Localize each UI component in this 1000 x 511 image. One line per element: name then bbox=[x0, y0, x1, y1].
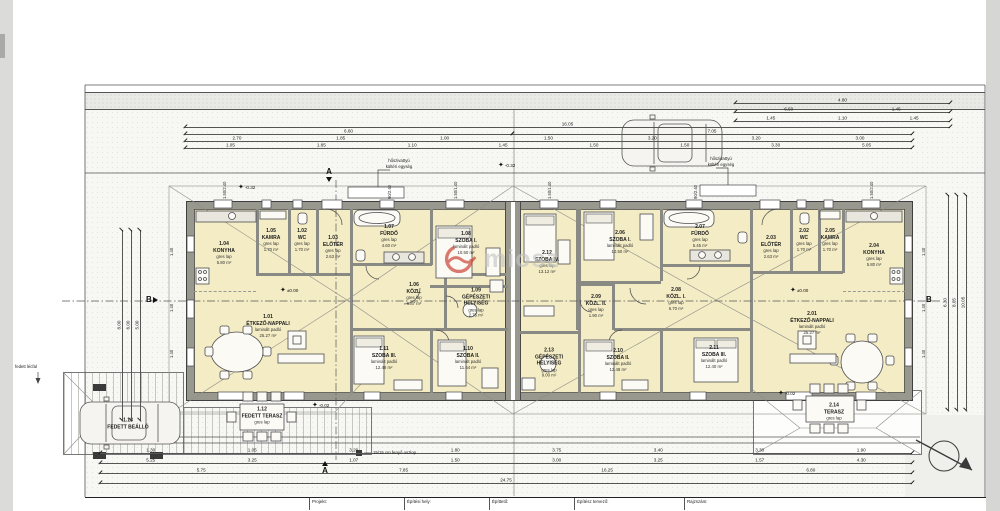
site-boundary-lines bbox=[85, 85, 985, 497]
dim-row-top-3: 2.701.851.001.503.203.203.00 bbox=[185, 141, 912, 142]
level-star-icon: ✦ bbox=[280, 287, 286, 294]
annotation-heat-pump-right: hőszivattyúkültéri egység bbox=[690, 156, 752, 167]
north-arrow-icon bbox=[916, 440, 972, 471]
room-label-kozl-1: 1.06KÖZL.gres lap6.87 m² bbox=[406, 282, 421, 306]
room-label-etkezo-nappali-1: 1.01ÉTKEZŐ-NAPPALIlaminált padló25.27 m² bbox=[246, 314, 290, 338]
room-label-konyha-2: 2.04KONYHAgres lap5.80 m² bbox=[863, 243, 885, 267]
title-block-cell-rajzszam: Rajzszám: bbox=[685, 498, 986, 510]
dim-row-drive-3: 1.451.101.45 bbox=[735, 121, 950, 122]
scan-artifact bbox=[0, 34, 5, 58]
level-star-icon: ✦ bbox=[790, 287, 796, 294]
dim-row-drive-2: 6.501.45 bbox=[735, 112, 950, 113]
page-edge-left bbox=[0, 0, 13, 511]
title-block-cell-epitesz-tervezo: Építész tervező: bbox=[575, 498, 685, 510]
room-label-konyha-1: 1.04KONYHAgres lap5.80 m² bbox=[213, 241, 235, 265]
dim-row-drive-1: 4.80 bbox=[735, 103, 950, 104]
title-block-cell-epitteto: Építtető: bbox=[490, 498, 575, 510]
room-label-fedett-terasz: 1.12FEDETT TERASZgres lap bbox=[242, 407, 283, 426]
section-marker-a-bottom: A bbox=[322, 461, 328, 475]
level-star-icon: ✦ bbox=[238, 184, 244, 191]
section-arrow-icon bbox=[326, 177, 332, 182]
level-marker: ✦-0.02 bbox=[312, 402, 329, 409]
floor-plan-canvas: 1.01ÉTKEZŐ-NAPPALIlaminált padló25.27 m²… bbox=[0, 0, 1000, 511]
annotation-post: 15/15 cm fenyő oszlop bbox=[373, 450, 416, 456]
room-label-szoba2-2: 2.10SZOBA II.laminált padló12.48 m² bbox=[605, 348, 632, 372]
dim-row-bottom-2: 5.253.251.071.503.003.251.574.30 bbox=[100, 463, 912, 464]
title-block: Projekt: Építési hely: Építtető: Építész… bbox=[85, 497, 986, 510]
room-label-fedett-beallo: 1.13FEDETT BEÁLLÓ bbox=[107, 418, 148, 431]
dim-row-top-total: 16.05 bbox=[185, 127, 950, 128]
annotation-fence: fedett lécfal bbox=[15, 364, 37, 370]
room-label-kamra-2: 2.05KAMRAgres lap1.70 m² bbox=[821, 228, 840, 252]
dim-col-left-2: 6.00 bbox=[131, 230, 132, 420]
dim-col-right-3: 10.05 bbox=[966, 195, 967, 410]
title-block-cell-projekt: Projekt: bbox=[310, 498, 405, 510]
dim-row-top-right: 7.05 bbox=[512, 134, 912, 135]
title-block-cell-epitesi-hely: Építési hely: bbox=[405, 498, 490, 510]
room-label-kozl2-2: 2.09KÖZL. II.gres lap1.90 m² bbox=[586, 294, 607, 318]
window-dim: 1.50/1.40 bbox=[547, 182, 552, 199]
dim-col-right-2: 8.05 bbox=[957, 195, 958, 410]
window-dim: 1.50/2.40 bbox=[222, 182, 227, 199]
level-marker: ✦±0.00 bbox=[280, 287, 298, 294]
dim-row-bottom-3: 5.757.8516.256.80 bbox=[100, 473, 912, 474]
room-label-furdo-2: 2.07FÜRDŐgres lap5.45 m² bbox=[691, 224, 709, 248]
level-marker: ✦±0.00 bbox=[790, 287, 808, 294]
level-star-icon: ✦ bbox=[312, 402, 318, 409]
room-label-wc-1: 1.02WCgres lap1.70 m² bbox=[294, 228, 309, 252]
room-label-gepeszeti-2: 2.13GÉPÉSZETI HELYISÉGgres lap9.00 m² bbox=[525, 348, 573, 379]
room-label-gepeszeti-1: 1.09GÉPÉSZETI HELYISÉGgres lap2.75 m² bbox=[452, 288, 500, 319]
wall-dim: 1.40 bbox=[921, 350, 926, 358]
section-arrow-icon bbox=[153, 297, 158, 303]
room-label-szoba2-1: 1.10SZOBA II.laminált padló11.64 m² bbox=[455, 346, 482, 370]
room-label-furdo-1: 1.07FÜRDŐgres lap4.60 m² bbox=[380, 224, 398, 248]
section-marker-a-top: A bbox=[326, 168, 332, 182]
room-label-terasz-2: 2.14TERASZgres lap bbox=[824, 403, 844, 422]
level-star-icon: ✦ bbox=[498, 162, 504, 169]
page-edge-right bbox=[986, 0, 1000, 511]
wall-dim: 1.40 bbox=[921, 248, 926, 256]
dim-col-left-1: 8.00 bbox=[122, 230, 123, 420]
annotation-heat-pump-left: hőszivattyúkültéri egység bbox=[368, 158, 430, 169]
room-label-szoba3-1: 1.11SZOBA III.laminált padló12.48 m² bbox=[371, 346, 398, 370]
window-dim: 1.50/2.40 bbox=[869, 182, 874, 199]
dim-row-bottom-total: 24.75 bbox=[100, 483, 912, 484]
dim-col-left-3: 5.00 bbox=[140, 230, 141, 420]
level-star-icon: ✦ bbox=[778, 390, 784, 397]
window-dim: 1.50/1.40 bbox=[453, 182, 458, 199]
room-label-wc-2: 2.02WCgres lap1.70 m² bbox=[796, 228, 811, 252]
room-label-szoba3-2: 2.11SZOBA III.laminált padló12.40 m² bbox=[701, 345, 728, 369]
section-marker-b-left: B bbox=[146, 296, 158, 304]
wall-dim: 1.40 bbox=[921, 304, 926, 312]
section-marker-b-right: B bbox=[926, 296, 932, 304]
level-marker: ✦-0.02 bbox=[778, 390, 795, 397]
room-label-kozl1-2: 2.08KÖZL. I.gres lap6.70 m² bbox=[666, 287, 685, 311]
window-dim: 90/2.40 bbox=[693, 185, 698, 199]
dim-row-top-4: 1.051.851.101.451.501.503.305.05 bbox=[185, 148, 912, 149]
level-marker: ✦-0.32 bbox=[238, 184, 255, 191]
room-label-eloter-2: 2.03ELŐTÉRgres lap2.63 m² bbox=[761, 235, 781, 259]
watermark: miosz bbox=[438, 238, 560, 280]
title-block-cell bbox=[85, 498, 310, 510]
dim-col-right-1: 6.30 bbox=[948, 195, 949, 410]
room-label-etkezo-nappali-2: 2.01ÉTKEZŐ-NAPPALIlaminált padló25.27 m² bbox=[790, 311, 834, 335]
window-dim: 90/2.40 bbox=[387, 185, 392, 199]
room-label-szoba1-2: 2.06SZOBA I.laminált padló10.50 m² bbox=[607, 230, 634, 254]
room-label-kamra-1: 1.05KAMRAgres lap1.70 m² bbox=[262, 228, 281, 252]
wall-dim: 1.40 bbox=[169, 248, 174, 256]
wall-dim: 1.40 bbox=[169, 304, 174, 312]
wall-dim: 1.40 bbox=[169, 350, 174, 358]
watermark-text: miosz bbox=[484, 245, 560, 274]
dim-row-bottom-1: 1.301.053.201.803.753.403.301.90 bbox=[100, 453, 912, 454]
watermark-logo-icon bbox=[438, 238, 480, 280]
room-label-eloter-1: 1.03ELŐTÉRgres lap2.63 m² bbox=[323, 235, 343, 259]
level-marker: ✦-0.32 bbox=[498, 162, 515, 169]
